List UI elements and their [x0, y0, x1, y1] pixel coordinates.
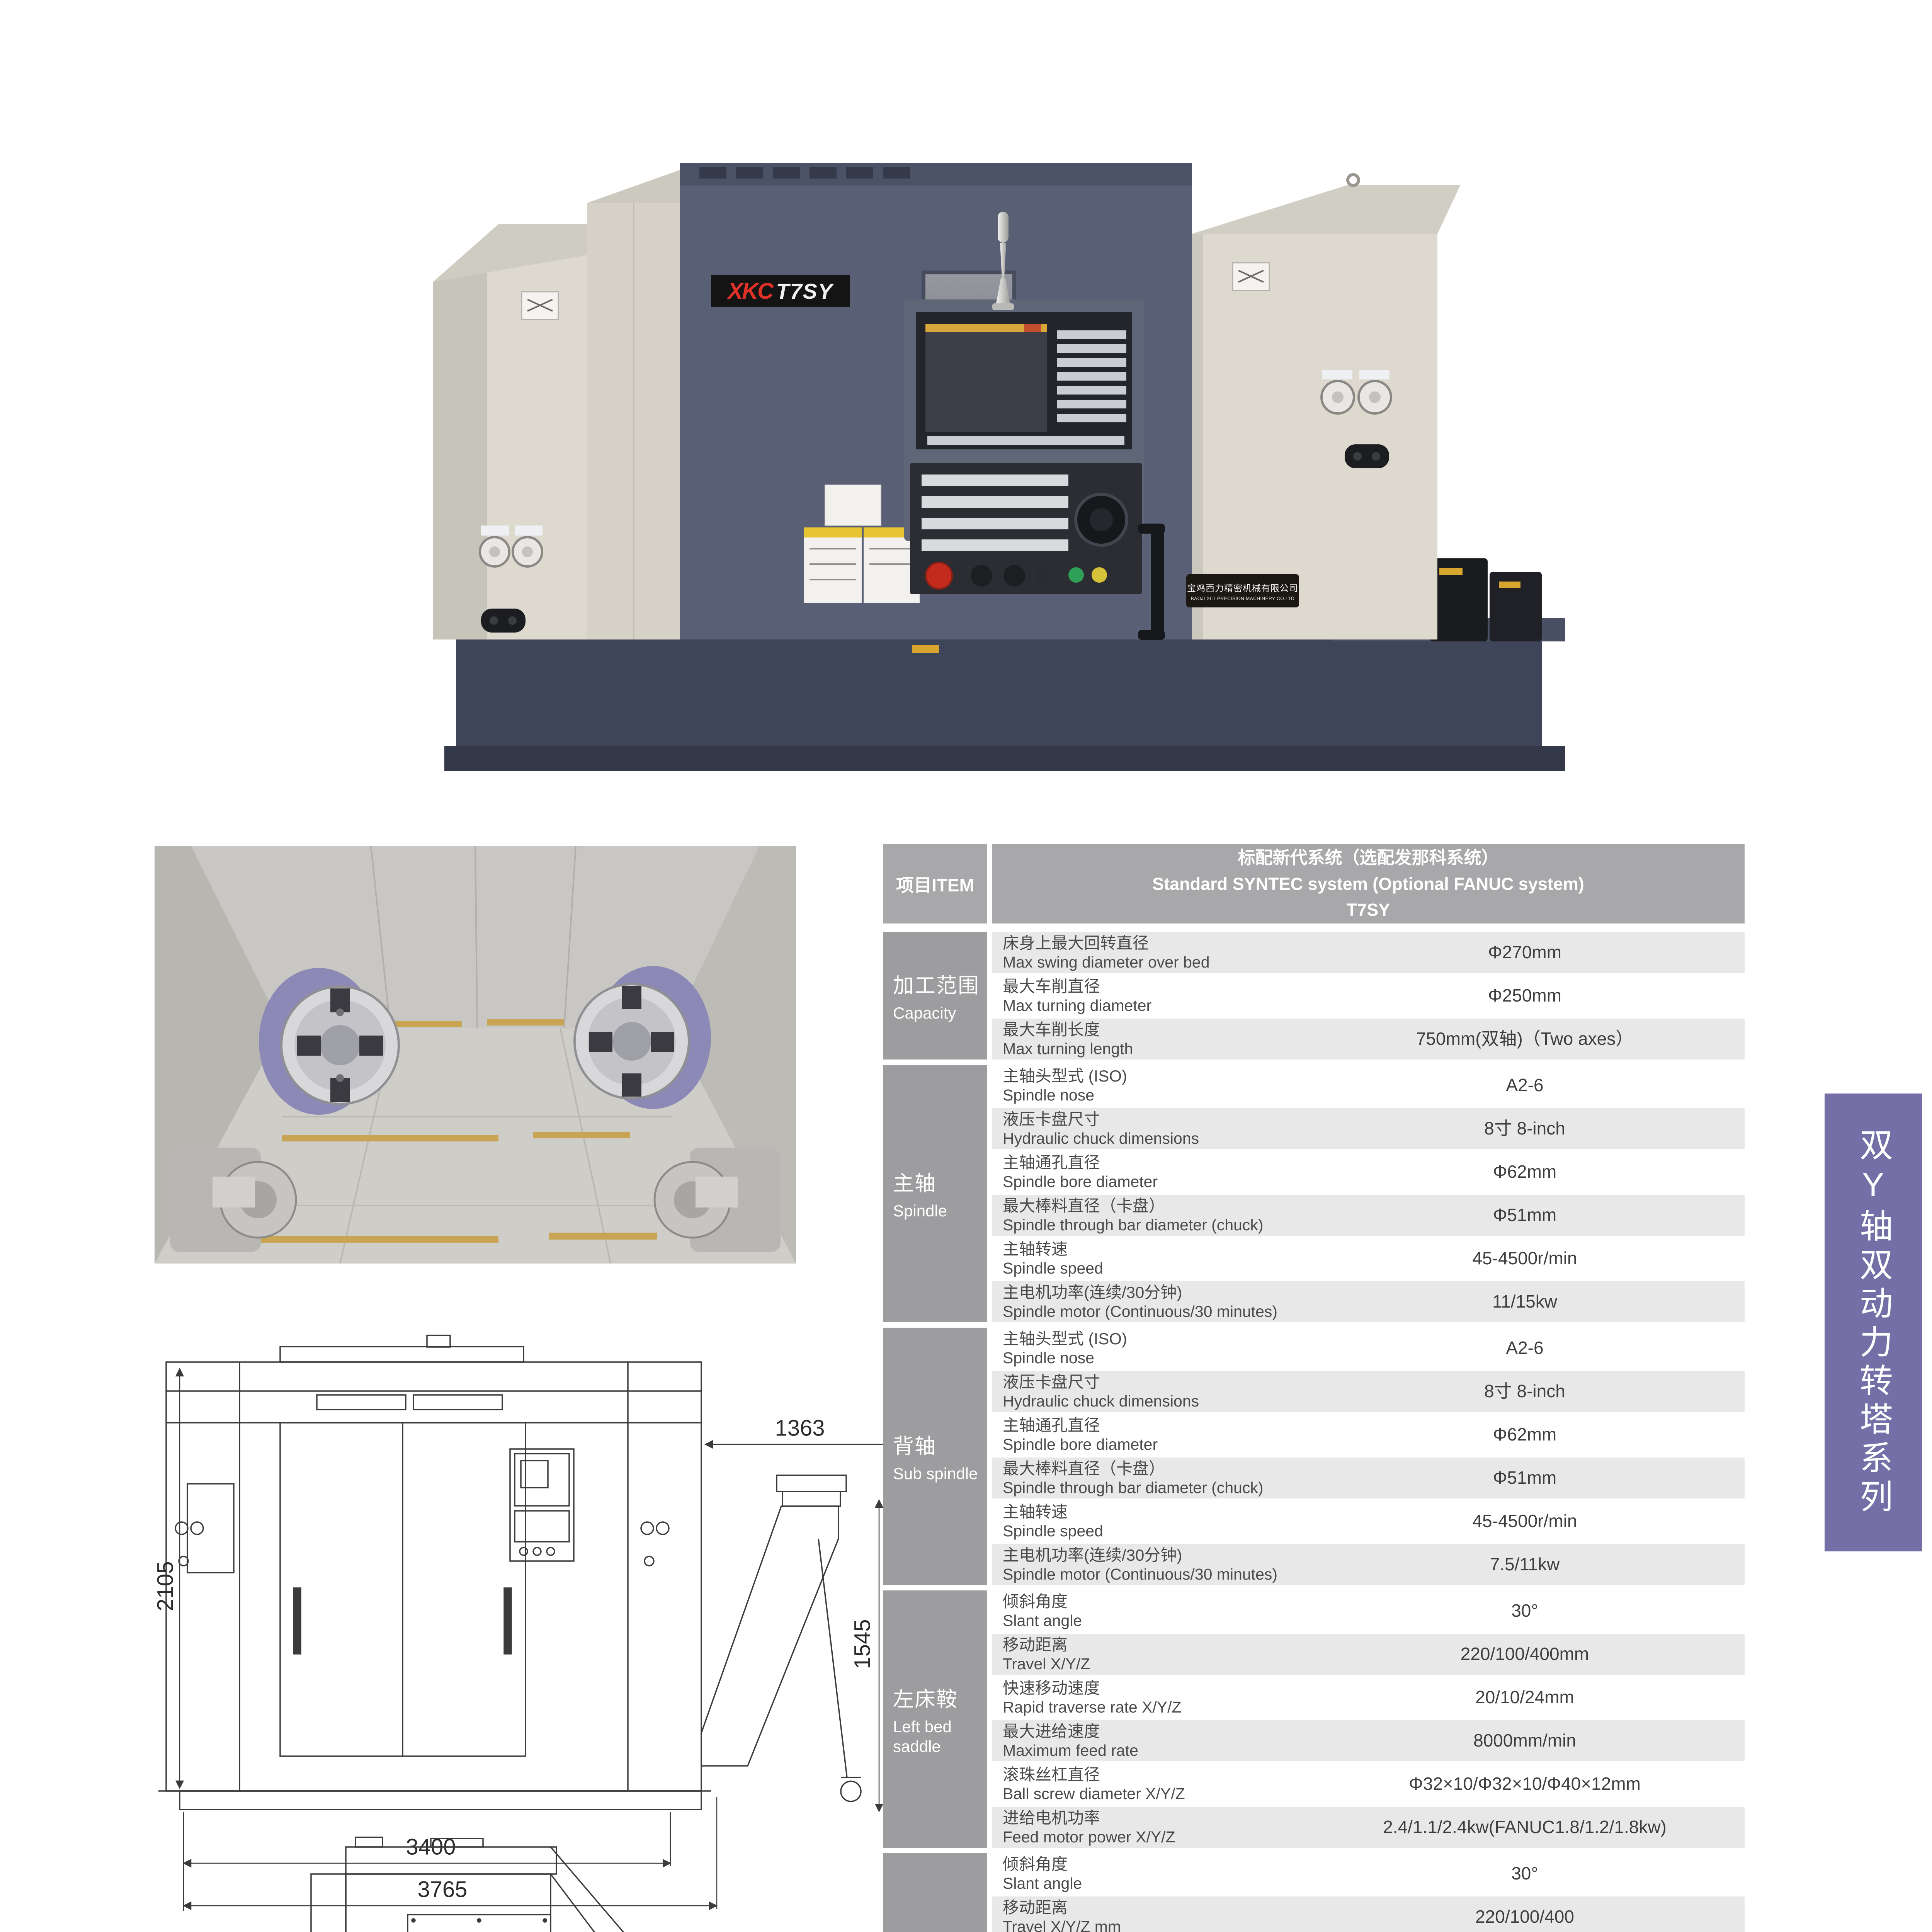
spec-row: 主电机功率(连续/30分钟)Spindle motor (Continuous/… — [992, 1281, 1745, 1322]
spec-section: 背轴Sub spindle主轴头型式 (ISO)Spindle noseA2-6… — [883, 1328, 1745, 1585]
spec-row: 最大进给速度Maximum feed rate8000mm/min — [992, 1720, 1745, 1761]
spec-value: 20/10/24mm — [1309, 1686, 1745, 1709]
spec-row: 液压卡盘尺寸Hydraulic chuck dimensions8寸 8-inc… — [992, 1371, 1745, 1412]
spec-value: 30° — [1309, 1600, 1745, 1622]
spec-attribute: 移动距离Travel X/Y/Z — [992, 1635, 1309, 1673]
series-banner: 双Y轴双动力转塔系列 — [1825, 1094, 1922, 1551]
header-system-line2: Standard SYNTEC system (Optional FANUC s… — [1152, 871, 1584, 897]
spec-row: 最大车削长度Max turning length750mm(双轴)（Two ax… — [992, 1019, 1745, 1060]
spec-attribute: 最大棒料直径（卡盘）Spindle through bar diameter (… — [992, 1459, 1309, 1497]
company-nameplate: 宝鸡西力精密机械有限公司 BAOJI XILI PRECISION MACHIN… — [1186, 574, 1299, 607]
spec-attribute: 主电机功率(连续/30分钟)Spindle motor (Continuous/… — [992, 1546, 1309, 1583]
spec-attribute: 主轴通孔直径Spindle bore diameter — [992, 1153, 1309, 1191]
spec-value: Φ32×10/Φ32×10/Φ40×12mm — [1309, 1773, 1745, 1795]
machine-illustration — [406, 139, 1565, 796]
spec-row: 主轴头型式 (ISO)Spindle noseA2-6 — [992, 1065, 1745, 1106]
spec-row: 床身上最大回转直径Max swing diameter over bedΦ270… — [992, 932, 1745, 973]
section-label: 右床鞍Right bed saddle — [883, 1853, 987, 1932]
spec-attribute: 主轴通孔直径Spindle bore diameter — [992, 1416, 1309, 1454]
spec-value: 220/100/400mm — [1309, 1643, 1745, 1665]
spec-row: 倾斜角度Slant angle30° — [992, 1853, 1745, 1894]
spec-value: Φ62mm — [1309, 1161, 1745, 1183]
section-label: 左床鞍Left bed saddle — [883, 1590, 987, 1848]
dim-conveyor-height: 1545 — [850, 1619, 876, 1669]
dim-conveyor-offset: 1363 — [775, 1415, 825, 1441]
spec-value: 220/100/400 — [1309, 1906, 1745, 1928]
spec-value: 750mm(双轴)（Two axes） — [1309, 1028, 1745, 1050]
spec-attribute: 主轴头型式 (ISO)Spindle nose — [992, 1066, 1309, 1104]
spec-section: 左床鞍Left bed saddle倾斜角度Slant angle30°移动距离… — [883, 1590, 1745, 1848]
spec-row: 滚珠丝杠直径Ball screw diameter X/Y/ZΦ32×10/Φ3… — [992, 1764, 1745, 1804]
cnc-screen — [925, 324, 1047, 432]
spec-row: 主轴转速Spindle speed45-4500r/min — [992, 1238, 1745, 1279]
badge-brand: XKC — [728, 278, 773, 304]
spec-section: 主轴Spindle主轴头型式 (ISO)Spindle noseA2-6液压卡盘… — [883, 1065, 1745, 1322]
dim-front-height: 2105 — [153, 1561, 179, 1611]
series-banner-text: 双Y轴双动力转塔系列 — [1849, 1128, 1898, 1518]
left-cabinet — [433, 224, 611, 639]
spec-attribute: 最大棒料直径（卡盘）Spindle through bar diameter (… — [992, 1196, 1309, 1234]
spec-value: 2.4/1.1/2.4kw(FANUC1.8/1.2/1.8kw) — [1309, 1816, 1745, 1838]
spec-value: 45-4500r/min — [1309, 1247, 1745, 1270]
outline-drawing-side: 1096 445 1977 — [298, 1832, 788, 1932]
spec-attribute: 床身上最大回转直径Max swing diameter over bed — [992, 934, 1309, 971]
spec-value: Φ270mm — [1309, 941, 1745, 964]
right-cabinet — [1192, 175, 1461, 639]
spec-value: A2-6 — [1309, 1337, 1745, 1359]
spec-section: 加工范围Capacity床身上最大回转直径Max swing diameter … — [883, 932, 1745, 1060]
section-label: 加工范围Capacity — [883, 932, 987, 1060]
header-item-cell: 项目ITEM — [883, 844, 987, 923]
spec-table-header: 项目ITEM 标配新代系统（选配发那科系统） Standard SYNTEC s… — [883, 844, 1745, 923]
spec-value: A2-6 — [1309, 1074, 1745, 1097]
spec-value: 8寸 8-inch — [1309, 1380, 1745, 1403]
section-label: 主轴Spindle — [883, 1065, 987, 1322]
spec-table-body: 加工范围Capacity床身上最大回转直径Max swing diameter … — [883, 932, 1745, 1932]
side-view-linework — [298, 1832, 788, 1932]
spec-attribute: 快速移动速度Rapid traverse rate X/Y/Z — [992, 1679, 1309, 1716]
spec-value: 7.5/11kw — [1309, 1553, 1745, 1576]
spec-attribute: 进给电机功率Feed motor power X/Y/Z — [992, 1808, 1309, 1846]
nameplate-chinese: 宝鸡西力精密机械有限公司 — [1187, 581, 1298, 594]
spec-row: 最大棒料直径（卡盘）Spindle through bar diameter (… — [992, 1195, 1745, 1236]
machine-model-badge: XKC T7SY — [711, 275, 850, 307]
spec-attribute: 液压卡盘尺寸Hydraulic chuck dimensions — [992, 1372, 1309, 1410]
spec-row: 最大棒料直径（卡盘）Spindle through bar diameter (… — [992, 1458, 1745, 1498]
spec-value: 8寸 8-inch — [1309, 1117, 1745, 1140]
spec-attribute: 最大车削长度Max turning length — [992, 1020, 1309, 1058]
spec-table: 项目ITEM 标配新代系统（选配发那科系统） Standard SYNTEC s… — [883, 844, 1745, 1932]
spec-row: 主轴通孔直径Spindle bore diameterΦ62mm — [992, 1151, 1745, 1192]
spec-attribute: 倾斜角度Slant angle — [992, 1855, 1309, 1893]
spec-row: 移动距离Travel X/Y/Z220/100/400mm — [992, 1634, 1745, 1675]
spec-attribute: 主轴转速Spindle speed — [992, 1502, 1309, 1540]
spec-attribute: 主轴头型式 (ISO)Spindle nose — [992, 1329, 1309, 1367]
spec-value: 8000mm/min — [1309, 1730, 1745, 1752]
spec-value: 11/15kw — [1309, 1291, 1745, 1313]
spec-row: 液压卡盘尺寸Hydraulic chuck dimensions8寸 8-inc… — [992, 1108, 1745, 1149]
interior-illustration — [155, 846, 796, 1264]
badge-model: T7SY — [776, 279, 833, 304]
section-label: 背轴Sub spindle — [883, 1328, 987, 1585]
slate-section — [680, 163, 1192, 640]
spec-value: Φ62mm — [1309, 1423, 1745, 1446]
spec-value: Φ250mm — [1309, 985, 1745, 1007]
spec-row: 主电机功率(连续/30分钟)Spindle motor (Continuous/… — [992, 1544, 1745, 1585]
spec-attribute: 主轴转速Spindle speed — [992, 1240, 1309, 1277]
header-system-cell: 标配新代系统（选配发那科系统） Standard SYNTEC system (… — [992, 844, 1745, 923]
spec-row: 快速移动速度Rapid traverse rate X/Y/Z20/10/24m… — [992, 1677, 1745, 1718]
spec-value: 30° — [1309, 1862, 1745, 1885]
spec-row: 进给电机功率Feed motor power X/Y/Z2.4/1.1/2.4k… — [992, 1807, 1745, 1848]
nameplate-english: BAOJI XILI PRECISION MACHINERY CO.LTD — [1191, 596, 1295, 601]
spec-section: 右床鞍Right bed saddle倾斜角度Slant angle30°移动距… — [883, 1853, 1745, 1932]
spec-row: 最大车削直径Max turning diameterΦ250mm — [992, 975, 1745, 1016]
interior-photo — [155, 846, 796, 1264]
header-system-line1: 标配新代系统（选配发那科系统） — [1238, 845, 1498, 871]
spec-attribute: 移动距离Travel X/Y/Z mm — [992, 1898, 1309, 1932]
spec-row: 主轴转速Spindle speed45-4500r/min — [992, 1501, 1745, 1542]
machine-photo: XKC T7SY 宝鸡西力精密机械有限公司 BAOJI XILI PRECISI… — [406, 139, 1565, 796]
spec-attribute: 最大车削直径Max turning diameter — [992, 977, 1309, 1015]
emergency-stop-button — [926, 563, 952, 589]
spec-attribute: 倾斜角度Slant angle — [992, 1592, 1309, 1630]
spec-row: 主轴通孔直径Spindle bore diameterΦ62mm — [992, 1414, 1745, 1455]
spec-value: Φ51mm — [1309, 1467, 1745, 1489]
spec-attribute: 主电机功率(连续/30分钟)Spindle motor (Continuous/… — [992, 1283, 1309, 1321]
spec-row: 主轴头型式 (ISO)Spindle noseA2-6 — [992, 1328, 1745, 1369]
spec-attribute: 滚珠丝杠直径Ball screw diameter X/Y/Z — [992, 1765, 1309, 1803]
spec-row: 倾斜角度Slant angle30° — [992, 1590, 1745, 1631]
spec-row: 移动距离Travel X/Y/Z mm220/100/400 — [992, 1896, 1745, 1932]
spec-value: 45-4500r/min — [1309, 1510, 1745, 1532]
spec-value: Φ51mm — [1309, 1204, 1745, 1226]
cnc-control-panel — [904, 299, 1165, 640]
spec-attribute: 液压卡盘尺寸Hydraulic chuck dimensions — [992, 1110, 1309, 1148]
header-model: T7SY — [1347, 897, 1390, 923]
spec-attribute: 最大进给速度Maximum feed rate — [992, 1722, 1309, 1760]
